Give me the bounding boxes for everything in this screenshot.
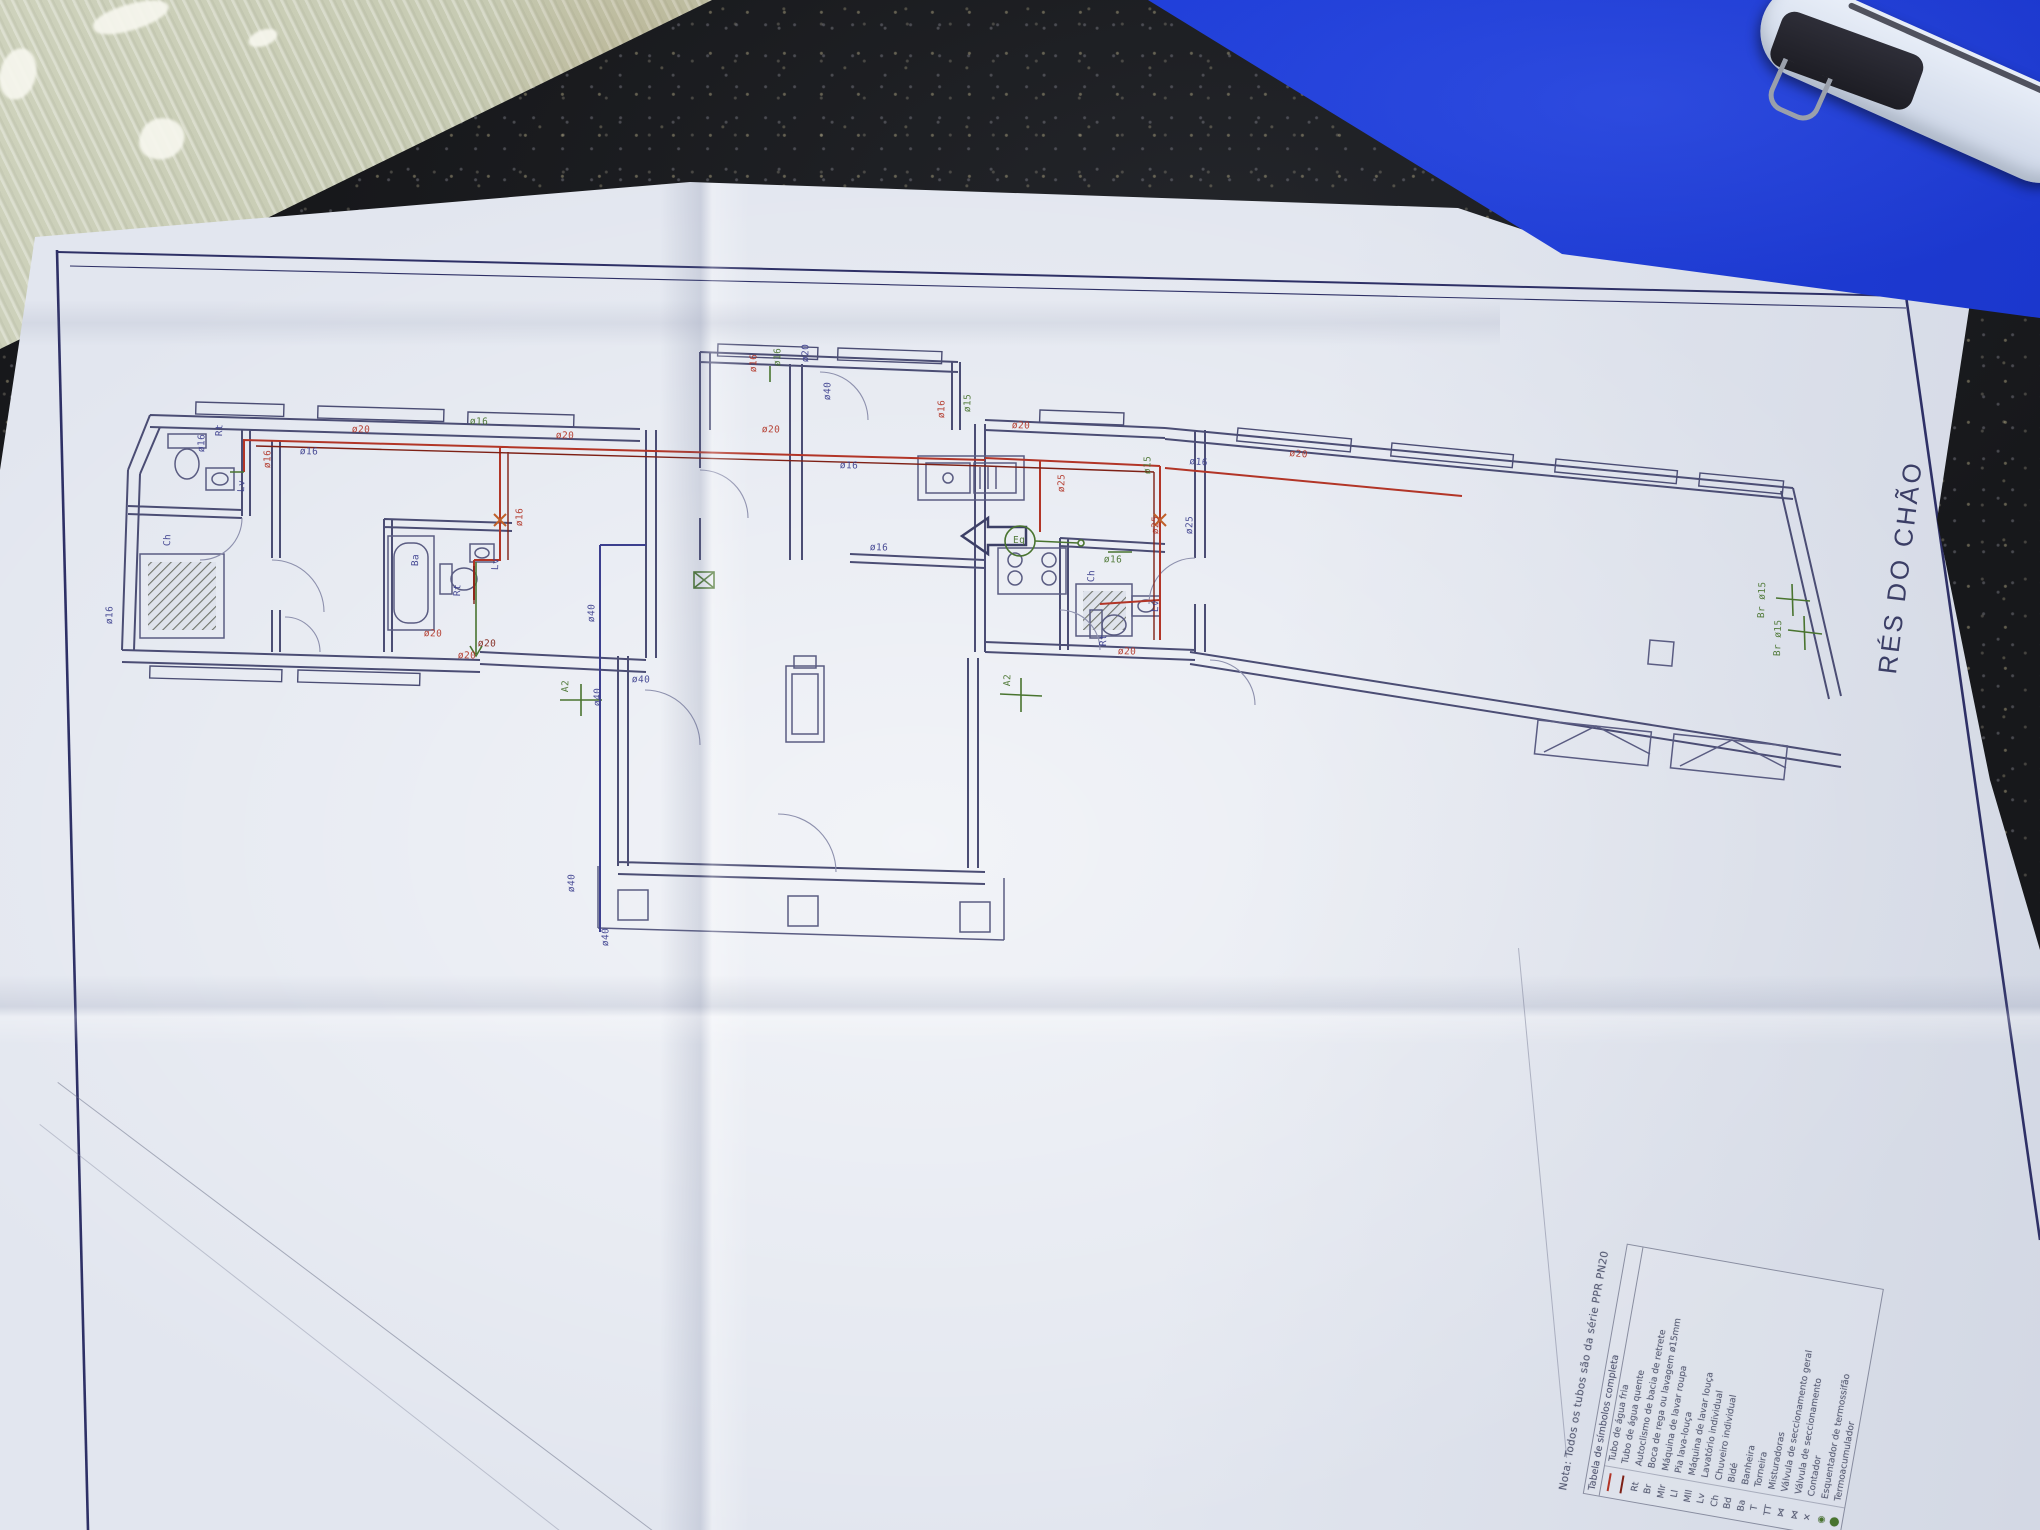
walls [122, 352, 1841, 884]
torn-patch [136, 114, 188, 164]
legend-line-swatch [1620, 1475, 1625, 1493]
window-sills [150, 344, 1784, 685]
legend-line-swatch [1606, 1473, 1611, 1491]
cold-water-pipes [244, 440, 1462, 640]
hot-water-pipes [256, 446, 1154, 640]
torn-patch [246, 25, 280, 50]
torn-patch [90, 0, 172, 41]
valve-marks [494, 514, 1166, 526]
legend-table: Tabela de símbolos completa Tubo de água… [1583, 1244, 1884, 1530]
photo-scene: ø20ø16ø20ø16ø16ø16RtLvChø16BaRtLvø20ø20ø… [0, 0, 2040, 1530]
fixtures [140, 434, 1787, 940]
torn-patch [0, 44, 42, 103]
legend-rows: Tubo de água fria Tubo de água quente Rt… [1600, 1248, 1883, 1530]
